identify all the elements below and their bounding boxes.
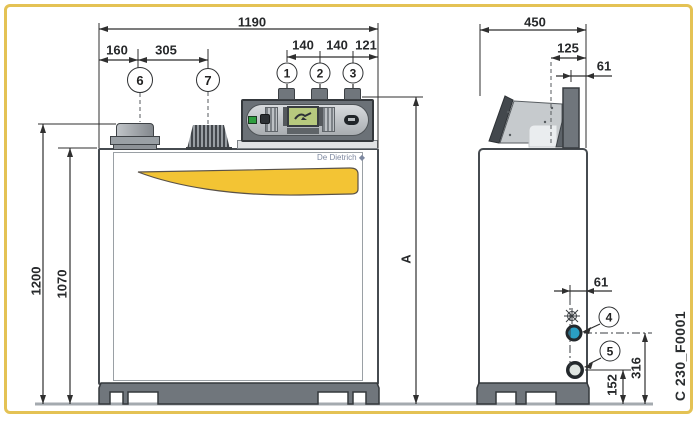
extension-lines <box>38 23 631 370</box>
side-base-plinth <box>477 383 589 404</box>
side-chimney-pipe <box>563 88 579 148</box>
dashed-leaders <box>140 62 551 146</box>
brand-swoosh <box>138 168 358 195</box>
valve-symbol-icon <box>564 308 580 324</box>
dimension-arrows <box>40 26 648 404</box>
connection-4 <box>566 325 583 342</box>
connection-5 <box>566 361 584 379</box>
boiler-dimension-drawing: De Dietrich ◆ <box>0 0 700 421</box>
dimension-overlay <box>0 0 700 421</box>
dimension-lines <box>43 29 645 404</box>
front-base-plinth <box>99 383 379 404</box>
side-insulation-block <box>529 125 557 147</box>
